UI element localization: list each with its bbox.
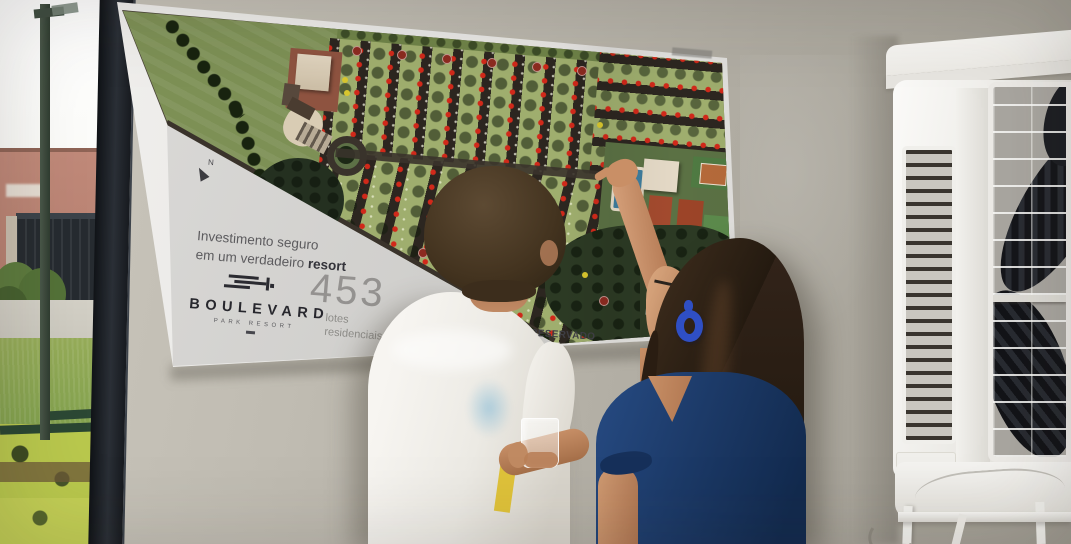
- grille-wires: [993, 87, 1066, 457]
- man-fingers: [524, 452, 558, 468]
- yellow-bushes-low: [0, 498, 102, 544]
- grille-midbar: [993, 295, 1066, 302]
- soil-band: [0, 462, 102, 482]
- cooler-side-louver: [902, 146, 956, 444]
- reserved-lot-dot: [597, 122, 603, 128]
- reserved-lot-dot: [342, 77, 348, 83]
- man-shirt-logo-hint: [466, 378, 512, 438]
- showroom-photo: M N Investimento seguro em um verdadeiro…: [0, 0, 1071, 544]
- stat-number: 453: [308, 266, 387, 317]
- block-badge: [442, 54, 452, 64]
- reserved-lot-dot: [582, 272, 588, 278]
- north-label: N: [208, 158, 214, 167]
- block-badge: [487, 58, 497, 68]
- block-badge: [532, 62, 542, 72]
- map-leisure-building: [642, 159, 680, 193]
- cooler-front-pillar: [956, 88, 990, 476]
- stat-label: lotes residenciais: [324, 311, 384, 344]
- block-badge: [577, 66, 587, 76]
- block-badge: [397, 50, 407, 60]
- brand-logo-icon: [221, 272, 275, 301]
- cooler-front-grille: [988, 82, 1071, 462]
- map-court-inner: [699, 163, 728, 186]
- brand-mark: [246, 331, 255, 335]
- man-shoulder-fold: [392, 330, 512, 370]
- block-badge: [599, 296, 609, 306]
- woman-earring-hoop: [676, 310, 703, 342]
- light-pole: [40, 4, 50, 440]
- cooler-wall-shadow: [850, 36, 898, 544]
- man-nape: [462, 280, 536, 302]
- block-badge: [352, 46, 362, 56]
- man-ear-hint: [540, 240, 558, 266]
- woman-left-arm: [598, 466, 638, 544]
- stand-crossbar: [898, 512, 1071, 522]
- stand-leg: [1035, 502, 1045, 544]
- reserved-lot-dot: [344, 90, 350, 96]
